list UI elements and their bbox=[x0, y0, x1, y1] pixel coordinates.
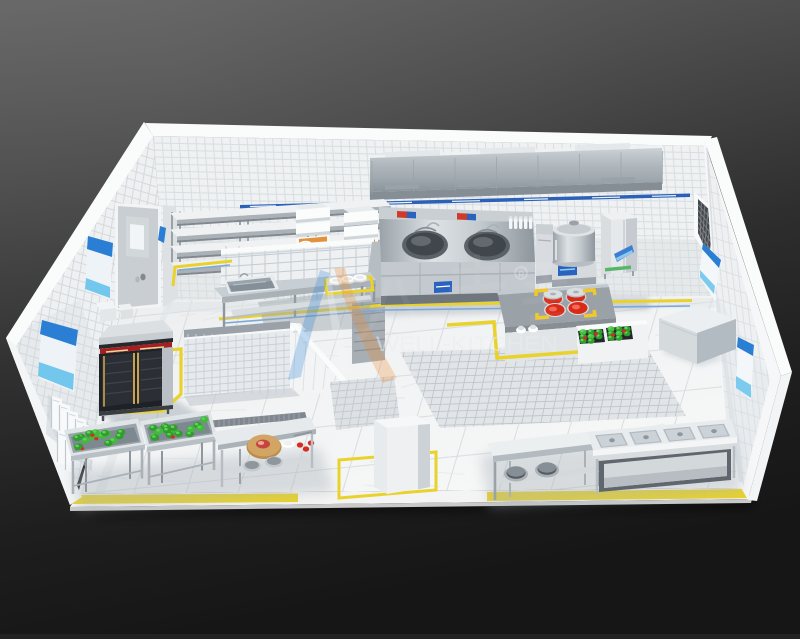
svg-text:WELL-KITCHEN: WELL-KITCHEN bbox=[376, 333, 558, 356]
svg-text:R: R bbox=[519, 271, 525, 280]
